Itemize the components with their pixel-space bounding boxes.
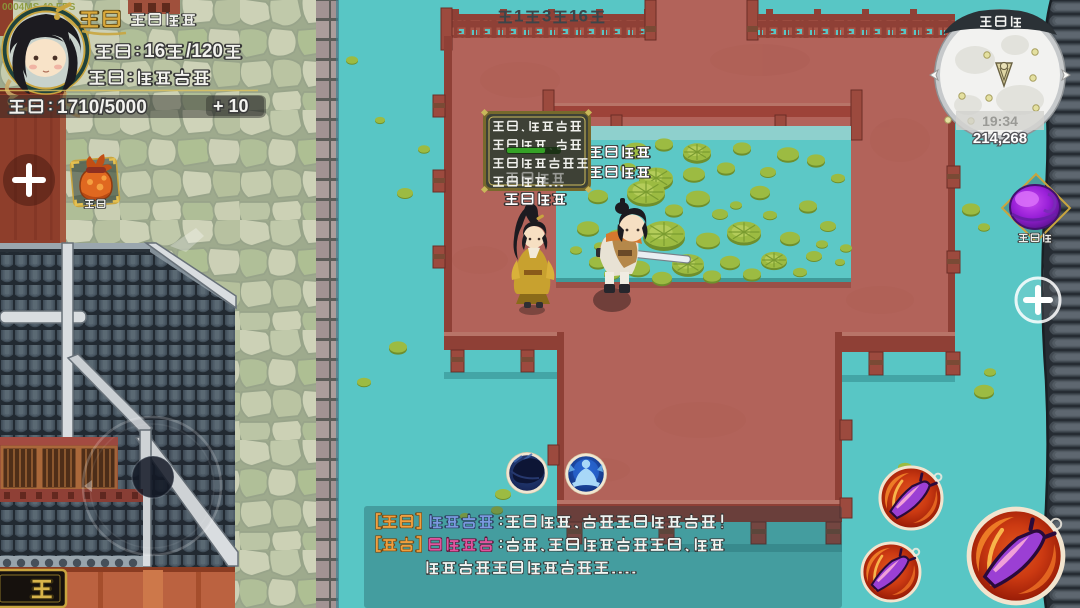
svg-text:16: 16 — [144, 41, 165, 62]
svg-text:16: 16 — [569, 7, 588, 26]
svg-text:19:34: 19:34 — [982, 113, 1018, 129]
svg-text:3: 3 — [542, 7, 551, 26]
svg-text:1710/5000: 1710/5000 — [57, 97, 147, 118]
svg-text:/120: /120 — [186, 41, 223, 62]
svg-text:+ 10: + 10 — [213, 96, 249, 116]
svg-text:1: 1 — [514, 7, 523, 26]
svg-text:214,268: 214,268 — [973, 130, 1027, 147]
